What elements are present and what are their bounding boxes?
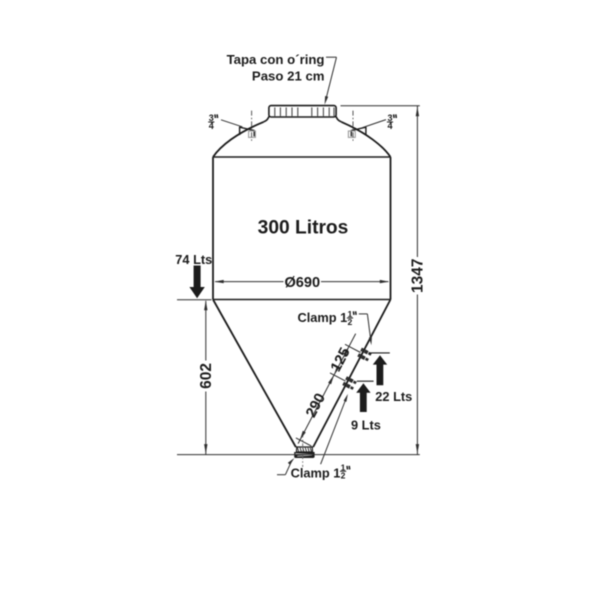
svg-text:Clamp 1: Clamp 1 xyxy=(298,310,348,325)
svg-text:4: 4 xyxy=(387,121,392,131)
svg-text:602: 602 xyxy=(198,363,215,389)
svg-text:300 Litros: 300 Litros xyxy=(258,217,349,238)
svg-text:Clamp 1: Clamp 1 xyxy=(291,465,341,480)
svg-text:2: 2 xyxy=(341,471,346,481)
svg-text:9 Lts: 9 Lts xyxy=(351,417,381,432)
svg-text:2: 2 xyxy=(348,317,353,327)
svg-text:Tapa con o´ring: Tapa con o´ring xyxy=(227,52,325,67)
svg-text:22 Lts: 22 Lts xyxy=(375,389,412,404)
svg-text:4: 4 xyxy=(209,121,214,131)
svg-text:Paso 21 cm: Paso 21 cm xyxy=(252,68,325,83)
svg-text:Ø690: Ø690 xyxy=(284,275,320,291)
svg-text:74 Lts: 74 Lts xyxy=(175,252,212,267)
svg-text:1347: 1347 xyxy=(410,258,427,292)
